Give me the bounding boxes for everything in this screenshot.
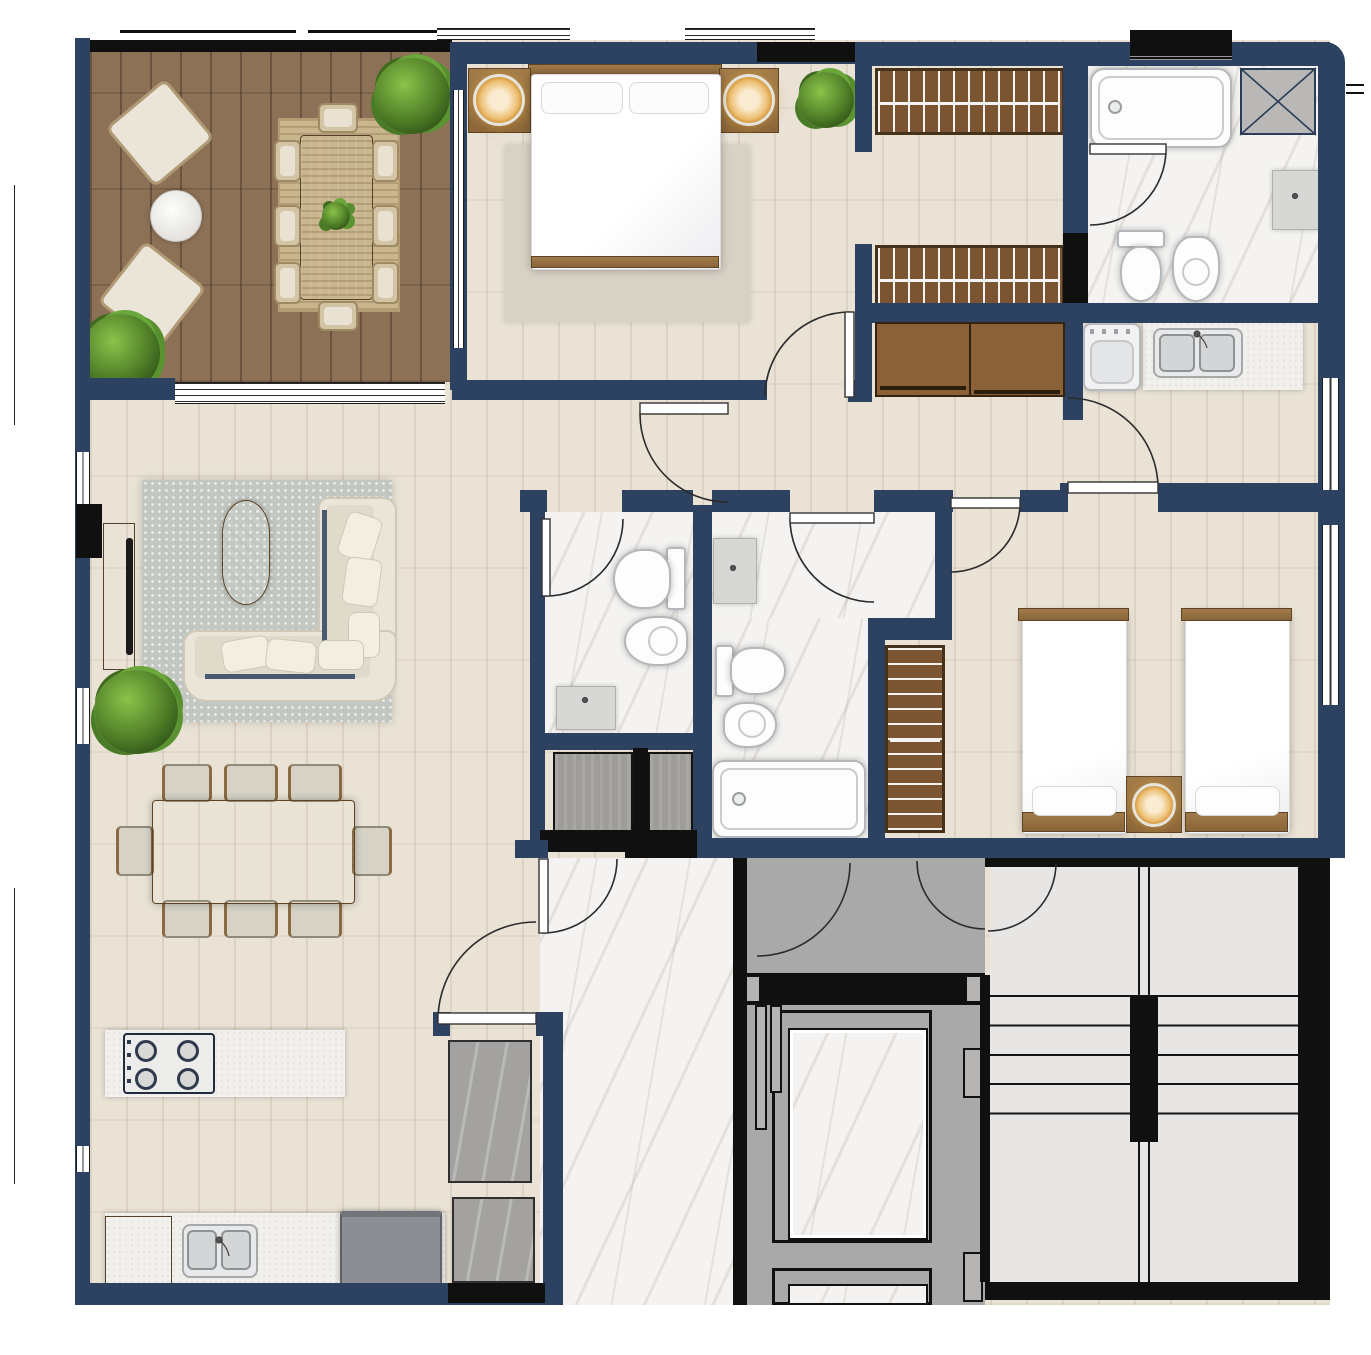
dining-chair	[288, 900, 342, 938]
toilet-bowl	[1120, 246, 1162, 302]
floor-plan-canvas	[0, 0, 1371, 1355]
elevator-band-inset	[747, 977, 759, 1001]
terrace-railing-line	[120, 30, 296, 33]
dining-chair	[224, 900, 278, 938]
coffee-table	[222, 500, 270, 605]
dimension-line	[14, 888, 15, 1184]
sofa-pillow	[264, 637, 317, 674]
wall-bedroom2-west	[935, 512, 952, 618]
wall-bedroom-closet-divider	[855, 244, 872, 402]
kitchen-cabinet	[105, 1216, 172, 1285]
dimension-tick	[1346, 84, 1364, 86]
terrace-railing-band	[85, 40, 452, 52]
window-bedroom2-east	[1322, 525, 1339, 705]
stair-flight-right	[1158, 995, 1298, 1142]
wall-black-window-box	[1130, 30, 1232, 60]
window-left-wall	[76, 688, 90, 744]
utility-shaft	[648, 752, 693, 838]
wall-laundry-west	[1063, 323, 1083, 420]
wall-black-segment	[757, 42, 857, 62]
foyer-floor	[540, 858, 733, 1305]
wall-laundry-south-seg	[1060, 483, 1068, 512]
wall-foyer-jamb	[515, 840, 548, 858]
wall-terrace-south	[75, 378, 175, 400]
wall-entry-black-band	[448, 1283, 545, 1303]
laundry-sink-basin	[1199, 334, 1235, 372]
window-bedroom-north	[437, 28, 570, 40]
stair-handrail	[1138, 867, 1150, 995]
terrace-chair	[318, 103, 358, 133]
bidet-basin	[738, 710, 766, 738]
terrace-railing-line	[308, 30, 448, 33]
stair-flight-left	[990, 995, 1130, 1142]
elevator-band-inset	[967, 977, 981, 1001]
toilet-bowl	[730, 647, 786, 695]
closet-door-handle	[880, 386, 966, 390]
duct-shaft	[1240, 68, 1316, 135]
terrace-chair	[372, 205, 399, 247]
wall-under-closet	[855, 303, 1318, 323]
kitchen-sink-basin	[221, 1230, 251, 1270]
terrace-sliding-door	[175, 382, 445, 404]
window-terrace-bedroom	[453, 90, 464, 348]
terrace-chair	[318, 301, 358, 331]
bedside-lamp	[1132, 783, 1176, 827]
wall-bedroom2-north-seg	[935, 490, 953, 512]
closet-door-handle	[974, 390, 1060, 394]
utility-shaft	[553, 752, 633, 838]
pillow	[541, 82, 623, 114]
terrace-chair	[274, 140, 301, 182]
bedside-lamp	[473, 74, 525, 126]
kitchen-sink-basin	[187, 1230, 217, 1270]
closet-wardrobe	[875, 68, 1065, 135]
elevator-lobby-wall	[733, 858, 747, 1305]
vanity-sink	[556, 686, 616, 730]
wall-bath1-west	[530, 505, 545, 845]
bathtub-drain	[1108, 100, 1122, 114]
hob-burner	[135, 1068, 157, 1090]
elevator-door-slot	[755, 1005, 767, 1130]
terrace-chair	[274, 205, 301, 247]
sofa-pillow	[341, 556, 383, 609]
dining-table	[152, 800, 355, 904]
hob-burner	[135, 1040, 157, 1062]
bed-headboard	[1018, 608, 1129, 621]
dining-chair	[162, 900, 212, 938]
wall-kitchen-foyer	[543, 1012, 563, 1305]
bed-footboard	[531, 256, 719, 268]
stair-divider	[1130, 995, 1158, 1142]
terrace-chair	[372, 140, 399, 182]
bedroom2-wardrobe	[885, 645, 945, 833]
stair-wall-right	[1298, 858, 1330, 1300]
washing-machine-door	[1090, 340, 1134, 384]
entry-gray-panel	[452, 1197, 535, 1283]
round-side-table	[150, 190, 202, 242]
wall-jog	[868, 618, 952, 640]
wall-bath2-north-seg	[874, 490, 935, 512]
dining-chair	[288, 764, 342, 802]
washer-controls	[1090, 329, 1134, 334]
window-left-wall	[76, 1146, 90, 1172]
terrace-chair	[372, 262, 399, 304]
bed-headboard	[1181, 608, 1292, 621]
wall-wardrobe	[868, 640, 885, 838]
dining-chair	[162, 764, 212, 802]
wall-closet-north	[872, 42, 1330, 66]
terrace-chair	[274, 262, 301, 304]
refrigerator	[340, 1211, 442, 1285]
hob-burner	[177, 1068, 199, 1090]
wall-closet-bath-divider	[1063, 42, 1088, 233]
wall-south-bedrooms	[695, 838, 1330, 858]
bedroom-plant	[798, 72, 854, 128]
wall-sink	[1272, 170, 1320, 230]
vanity-sink	[713, 538, 757, 604]
living-room-plant	[94, 670, 178, 754]
tv	[126, 538, 133, 655]
window-left-wall	[76, 452, 90, 504]
terrace-table-plant	[322, 202, 350, 230]
window-laundry-east	[1322, 378, 1339, 490]
pillow	[1195, 786, 1280, 816]
bidet-basin	[648, 626, 678, 656]
bidet-basin	[1182, 258, 1210, 286]
entry-gray-panel	[448, 1040, 532, 1183]
dining-chair	[224, 764, 278, 802]
pillow	[1032, 786, 1117, 816]
wall-hallway-north-jamb	[848, 380, 872, 402]
wall-hall-south-seg	[622, 490, 693, 512]
toilet-bowl	[613, 549, 671, 609]
elevator-cabin-partial	[788, 1284, 928, 1305]
elevator-cabin	[788, 1028, 928, 1240]
stair-wall-bottom	[985, 1282, 1330, 1300]
bedside-lamp	[723, 74, 775, 126]
wall-bath2-north-seg	[712, 490, 790, 512]
wall-bedroom-closet-divider	[855, 42, 872, 152]
wall-entrance-jamb	[433, 1012, 450, 1036]
stair-wall-left	[980, 975, 990, 1282]
laundry-sink-basin	[1159, 334, 1195, 372]
closet-wardrobe	[875, 245, 1065, 312]
elevator-door-slot	[770, 1005, 782, 1093]
dimension-line	[14, 185, 15, 425]
hob-controls	[127, 1040, 131, 1090]
window-bedroom-north	[685, 28, 815, 40]
wall-laundry-south-seg	[1158, 483, 1318, 512]
terrace-plant	[374, 58, 450, 134]
sofa-accent-line	[205, 674, 355, 679]
wall-hallway-north	[452, 380, 767, 400]
dining-chair	[352, 826, 392, 876]
wall-bath-divider	[693, 505, 712, 858]
window-left-dark	[76, 504, 102, 558]
wall-left	[75, 38, 90, 1305]
dining-chair	[116, 826, 154, 876]
dimension-tick	[1346, 92, 1364, 94]
hob-burner	[177, 1040, 199, 1062]
pillow	[629, 82, 709, 114]
wall-foyer-black	[625, 840, 697, 858]
wall-bath1-south	[530, 733, 693, 750]
sofa-pillow	[318, 640, 364, 670]
elevator-band-wall	[733, 973, 985, 1005]
bathtub-drain	[732, 792, 746, 806]
wall-closet-bath-divider-black	[1063, 233, 1088, 305]
sofa-accent-line	[322, 510, 327, 650]
stair-handrail	[1138, 1142, 1150, 1282]
